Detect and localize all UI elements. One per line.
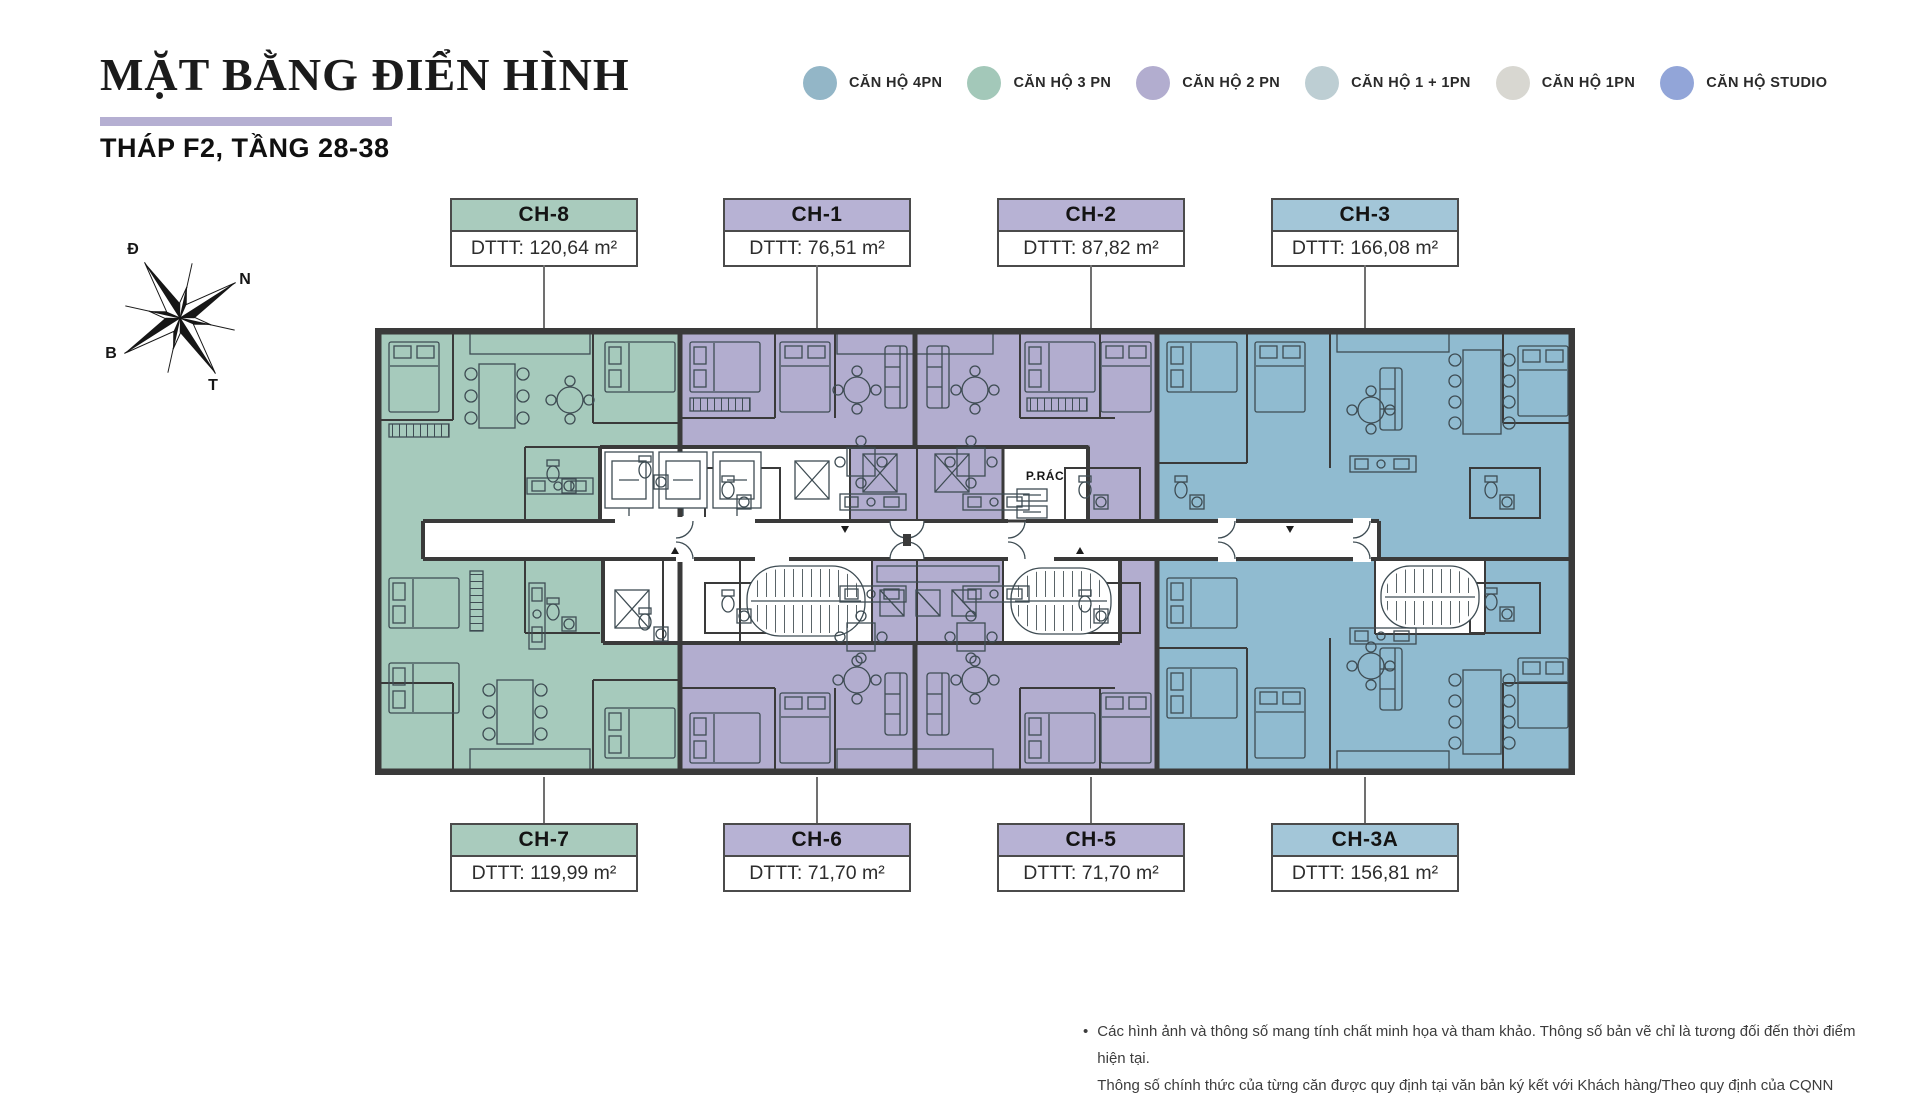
page-subtitle: THÁP F2, TẦNG 28-38: [100, 133, 390, 164]
legend-item-label: CĂN HỘ STUDIO: [1706, 75, 1827, 91]
page: { "header": { "title": "MẶT BẰNG ĐIỂN HÌ…: [0, 0, 1920, 1080]
legend-color-dot-icon: [1305, 66, 1339, 100]
compass-label-east: Đ: [127, 241, 139, 258]
unit-id: CH-8: [452, 200, 636, 232]
legend-item: CĂN HỘ STUDIO: [1660, 66, 1827, 100]
callout-line: [543, 265, 545, 328]
trash-room-label: P.RÁC: [1026, 468, 1064, 483]
compass-label-north: B: [105, 345, 117, 362]
footer-bullet: •: [1083, 1018, 1088, 1099]
title-underline: [100, 117, 392, 126]
legend-item: CĂN HỘ 2 PN: [1136, 66, 1280, 100]
legend: CĂN HỘ 4PN CĂN HỘ 3 PN CĂN HỘ 2 PN CĂN H…: [803, 66, 1827, 100]
legend-item: CĂN HỘ 1PN: [1496, 66, 1635, 100]
unit-label-CH-2: CH-2DTTT: 87,82 m²: [997, 198, 1185, 267]
unit-id: CH-6: [725, 825, 909, 857]
legend-item: CĂN HỘ 3 PN: [967, 66, 1111, 100]
legend-item: CĂN HỘ 1 + 1PN: [1305, 66, 1471, 100]
unit-area: DTTT: 156,81 m²: [1273, 857, 1457, 890]
unit-label-CH-8: CH-8DTTT: 120,64 m²: [450, 198, 638, 267]
legend-color-dot-icon: [1496, 66, 1530, 100]
footer-disclaimer: • Các hình ảnh và thông số mang tính chấ…: [1083, 1018, 1883, 1099]
footer-text: Các hình ảnh và thông số mang tính chất …: [1097, 1018, 1883, 1099]
stairwell: [1381, 566, 1479, 628]
callout-line: [816, 265, 818, 328]
compass-label-south: N: [239, 271, 251, 288]
unit-label-CH-5: CH-5DTTT: 71,70 m²: [997, 823, 1185, 892]
unit-area: DTTT: 119,99 m²: [452, 857, 636, 890]
unit-label-CH-1: CH-1DTTT: 76,51 m²: [723, 198, 911, 267]
legend-color-dot-icon: [1136, 66, 1170, 100]
legend-item: CĂN HỘ 4PN: [803, 66, 942, 100]
unit-id: CH-3: [1273, 200, 1457, 232]
unit-label-CH-3: CH-3DTTT: 166,08 m²: [1271, 198, 1459, 267]
unit-id: CH-3A: [1273, 825, 1457, 857]
callout-line: [816, 777, 818, 823]
unit-area: DTTT: 71,70 m²: [999, 857, 1183, 890]
stairwell: [1011, 568, 1111, 634]
unit-id: CH-2: [999, 200, 1183, 232]
unit-area: DTTT: 87,82 m²: [999, 232, 1183, 265]
legend-item-label: CĂN HỘ 2 PN: [1182, 75, 1280, 91]
unit-id: CH-1: [725, 200, 909, 232]
unit-area: DTTT: 166,08 m²: [1273, 232, 1457, 265]
unit-id: CH-5: [999, 825, 1183, 857]
legend-item-label: CĂN HỘ 4PN: [849, 75, 942, 91]
compass-rose-icon: Đ N B T: [95, 232, 270, 407]
callout-line: [1364, 265, 1366, 328]
unit-area: DTTT: 76,51 m²: [725, 232, 909, 265]
callout-line: [1090, 265, 1092, 328]
callout-line: [1090, 777, 1092, 823]
legend-item-label: CĂN HỘ 1PN: [1542, 75, 1635, 91]
legend-color-dot-icon: [1660, 66, 1694, 100]
callout-line: [1364, 777, 1366, 823]
legend-color-dot-icon: [803, 66, 837, 100]
compass-label-west: T: [208, 377, 218, 394]
unit-label-CH-7: CH-7DTTT: 119,99 m²: [450, 823, 638, 892]
floor-plan: P.RÁC: [375, 328, 1575, 775]
unit-area: DTTT: 120,64 m²: [452, 232, 636, 265]
legend-item-label: CĂN HỘ 3 PN: [1013, 75, 1111, 91]
legend-color-dot-icon: [967, 66, 1001, 100]
unit-label-CH-6: CH-6DTTT: 71,70 m²: [723, 823, 911, 892]
unit-label-CH-3A: CH-3ADTTT: 156,81 m²: [1271, 823, 1459, 892]
unit-id: CH-7: [452, 825, 636, 857]
unit-area: DTTT: 71,70 m²: [725, 857, 909, 890]
callout-line: [543, 777, 545, 823]
footer-line-1: Các hình ảnh và thông số mang tính chất …: [1097, 1023, 1855, 1067]
legend-item-label: CĂN HỘ 1 + 1PN: [1351, 75, 1471, 91]
page-title: MẶT BẰNG ĐIỂN HÌNH: [100, 48, 630, 101]
